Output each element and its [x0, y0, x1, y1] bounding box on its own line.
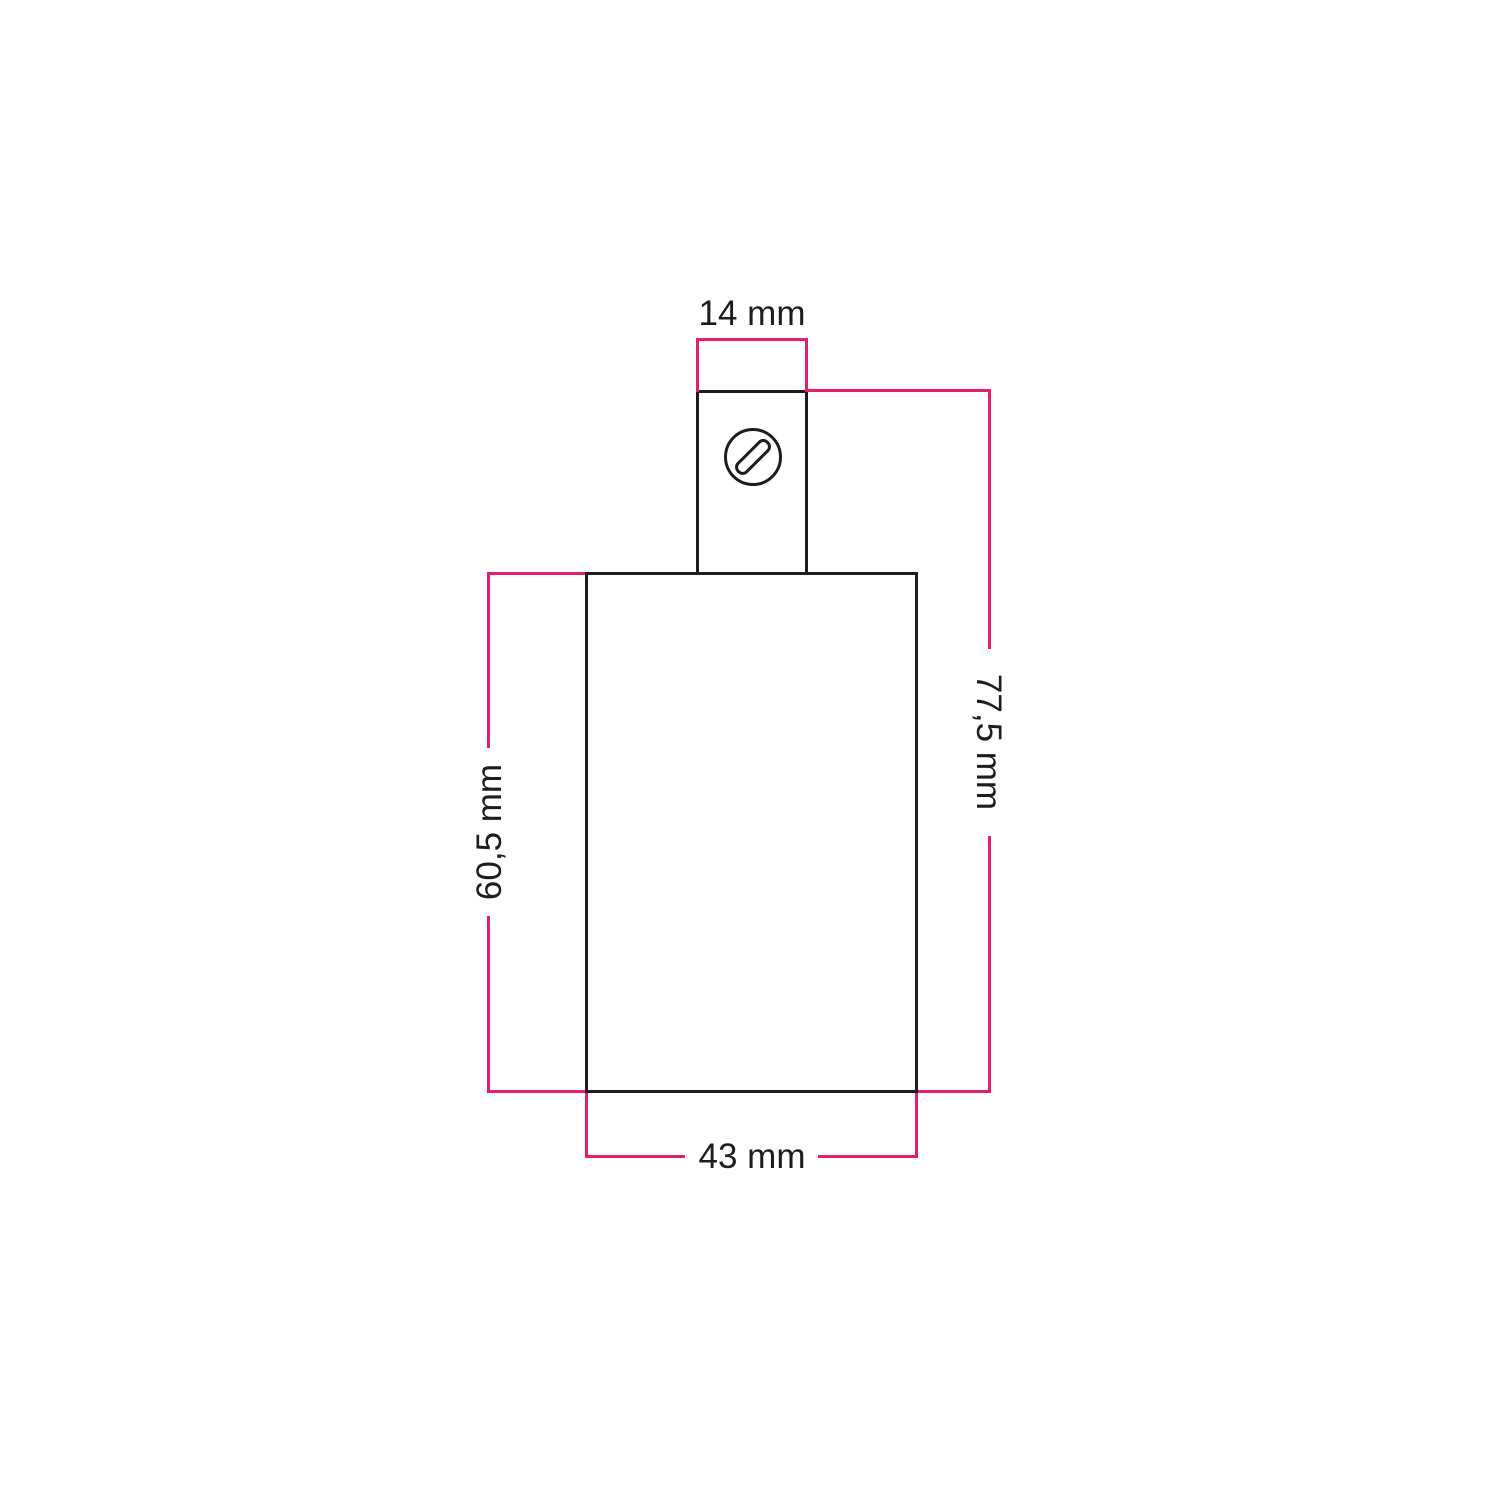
dimension-diagram: 14 mm 77,5 mm 60,5 mm 43 mm	[0, 0, 1500, 1500]
screw-head-icon	[724, 428, 782, 486]
dim-label-overall-height: 77,5 mm	[967, 642, 1011, 842]
lamp-holder-body-outline	[585, 572, 918, 1093]
dim-body-height-line-lower	[487, 916, 490, 1093]
dim-body-height-line-upper	[487, 572, 490, 748]
dim-overall-height-line-upper	[988, 389, 991, 649]
dim-overall-height-line-top	[805, 389, 991, 392]
dim-top-width-line-horizontal	[696, 338, 808, 341]
dim-overall-height-line-lower	[988, 836, 991, 1093]
dim-label-body-width: 43 mm	[652, 1134, 852, 1178]
dim-body-height-line-top	[487, 572, 585, 575]
dim-overall-height-line-bottom	[918, 1090, 991, 1093]
dim-label-top-width: 14 mm	[652, 291, 852, 335]
screw-slot-icon	[732, 436, 774, 478]
dim-label-body-height: 60,5 mm	[467, 732, 511, 932]
dim-top-width-line-left-leg	[696, 338, 699, 392]
dim-top-width-line-right-leg	[805, 338, 808, 392]
dim-body-width-line-left-leg	[585, 1093, 588, 1157]
dim-body-width-line-right-leg	[915, 1093, 918, 1157]
dim-body-height-line-bottom	[487, 1090, 585, 1093]
